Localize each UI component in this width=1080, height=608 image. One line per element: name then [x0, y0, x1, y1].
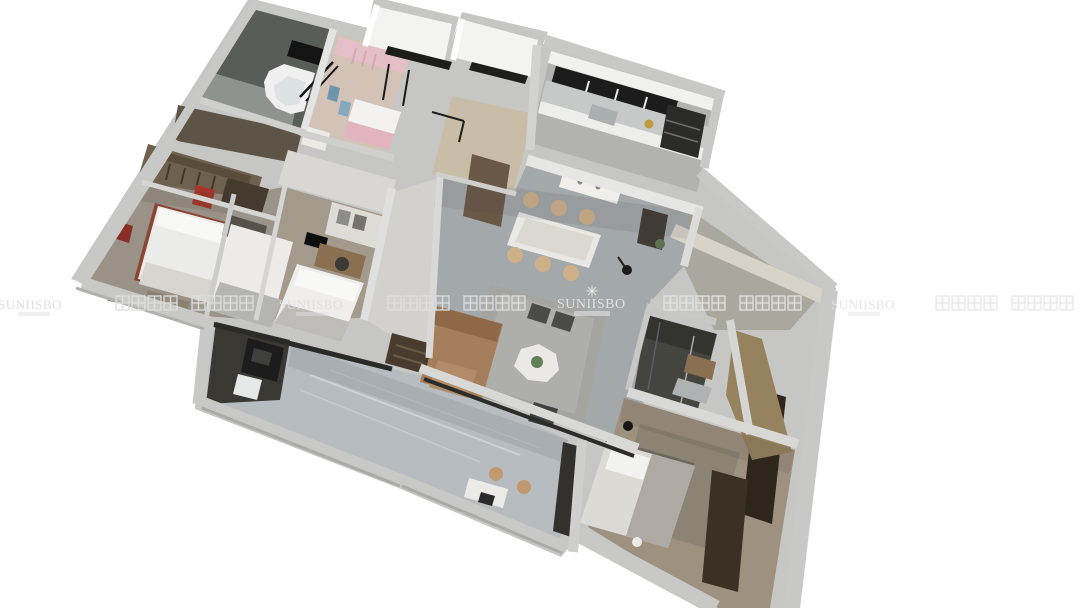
svg-text:SUNIISBO: SUNIISBO: [0, 297, 62, 312]
svg-text:SUNIISBO: SUNIISBO: [831, 297, 895, 312]
svg-text:SUNIISBO: SUNIISBO: [557, 297, 626, 312]
svg-text:SUNIISBO: SUNIISBO: [279, 297, 343, 312]
